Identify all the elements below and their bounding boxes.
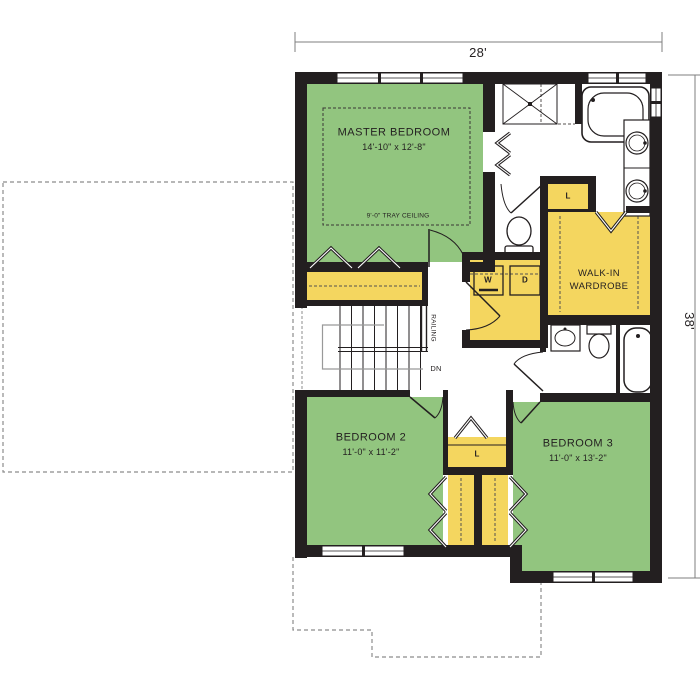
dryer-label: D [522, 276, 528, 287]
walk-in-wardrobe-label: WALK-IN WARDROBE [557, 268, 641, 294]
master-window [337, 73, 463, 83]
railing-label: RAILING [428, 314, 437, 341]
bedroom3-label: BEDROOM 3 [543, 437, 614, 452]
linen-bedrooms-label: L [474, 450, 479, 461]
width-dimension-label: 28' [469, 44, 487, 62]
master-suite-folding-door [497, 133, 510, 175]
linen-hall-label: L [565, 192, 570, 203]
stairs-down-label: DN [430, 364, 441, 374]
wc-door [501, 184, 543, 213]
walk-in-wardrobe-area [548, 212, 650, 315]
bath2-toilet-bowl [589, 334, 609, 358]
bedroom3-size: 11'-0" x 13'-2" [549, 452, 607, 464]
bedroom2-window [322, 546, 404, 556]
side-window [651, 88, 661, 117]
shower [503, 84, 557, 124]
bedroom3-window [553, 572, 633, 582]
staircase [323, 306, 429, 390]
bedroom2-size: 11'-0" x 11'-2" [342, 446, 399, 458]
bath-window [588, 73, 646, 83]
depth-dimension-label: 38' [680, 312, 698, 330]
bedroom2-area [307, 397, 443, 545]
floor-plan-drawing [0, 0, 700, 700]
toilet-master-wc [505, 217, 533, 257]
bedroom2-label: BEDROOM 2 [336, 431, 407, 446]
washer-label: W [484, 276, 492, 287]
bath2-fixtures [551, 325, 652, 392]
bath2-toilet-tank [587, 325, 611, 334]
double-vanity-sinks [624, 120, 650, 216]
linen-bifold [455, 418, 487, 438]
master-bedroom-size: 14'-10" x 12'-8" [362, 141, 426, 153]
master-bedroom-label: MASTER BEDROOM [338, 126, 451, 141]
floor-plan: 28' 38' MASTER BEDROOM 14'-10" x 12'-8" … [0, 0, 700, 700]
tray-ceiling-note: 9'-0" TRAY CEILING [367, 213, 430, 222]
bath2-door [514, 352, 543, 391]
bedroom3-area [513, 402, 650, 571]
master-bedroom-area [307, 84, 483, 262]
